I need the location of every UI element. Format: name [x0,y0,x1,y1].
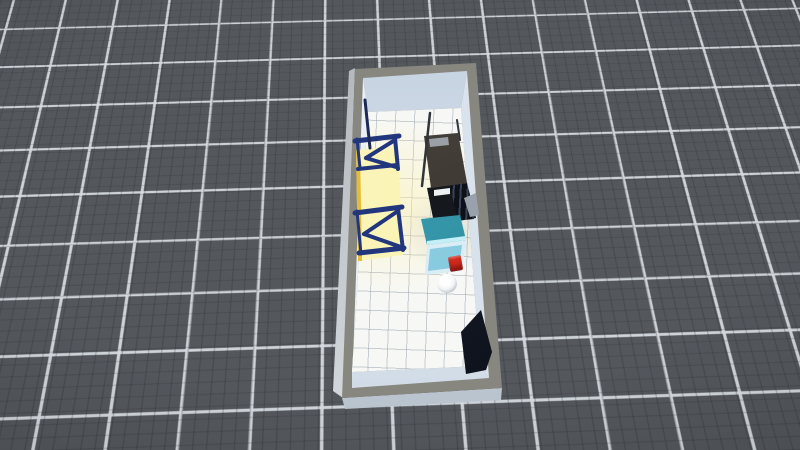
rack-and-poles-overlay [0,0,800,450]
rack-post [357,211,361,254]
simulation-viewport[interactable] [0,0,800,450]
rack-frame-far [355,136,399,169]
floor-lamp-pole[interactable] [422,113,460,186]
rack-post [357,139,360,168]
rack-brace [364,211,398,234]
rack-beam [358,165,397,169]
rack-frame-near [355,207,404,254]
rack-post [398,208,403,250]
rack-brace [364,234,401,247]
chair-post-line [457,120,460,140]
rack-beam [359,248,404,253]
lamp-pole-line [422,113,430,186]
